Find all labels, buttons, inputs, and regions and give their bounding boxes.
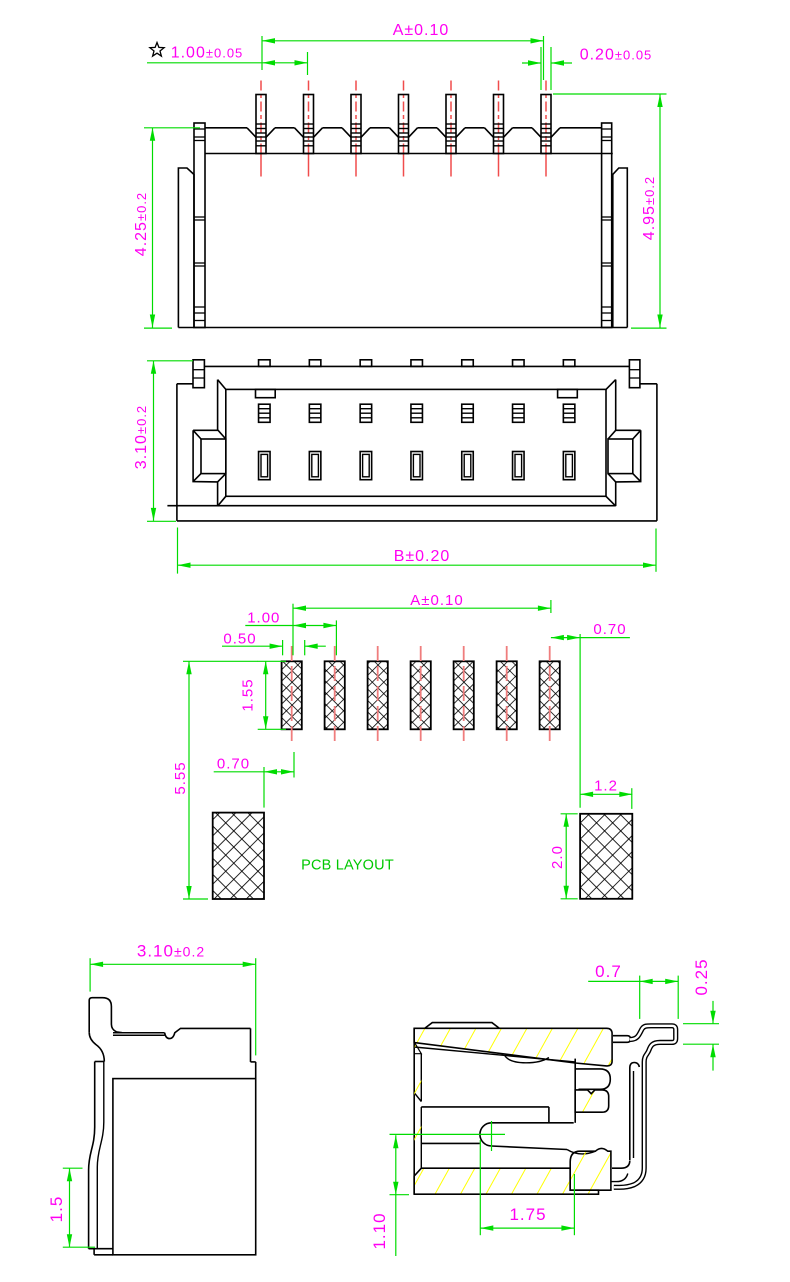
svg-text:4.95±0.2: 4.95±0.2 xyxy=(641,176,658,240)
svg-text:0.25: 0.25 xyxy=(692,958,711,995)
svg-text:0.70: 0.70 xyxy=(217,756,250,773)
svg-text:5.55: 5.55 xyxy=(172,761,189,794)
svg-text:2.0: 2.0 xyxy=(549,845,566,869)
svg-text:B±0.20: B±0.20 xyxy=(394,548,451,565)
svg-text:0.7: 0.7 xyxy=(595,962,622,981)
svg-text:0.50: 0.50 xyxy=(223,631,256,648)
svg-text:0.20±0.05: 0.20±0.05 xyxy=(580,47,653,64)
svg-text:1.55: 1.55 xyxy=(240,678,257,711)
svg-text:1.2: 1.2 xyxy=(594,777,618,794)
svg-text:4.25±0.2: 4.25±0.2 xyxy=(133,192,150,256)
svg-text:3.10±0.2: 3.10±0.2 xyxy=(137,942,205,961)
svg-text:3.10±0.2: 3.10±0.2 xyxy=(133,405,150,469)
svg-text:1.75: 1.75 xyxy=(509,1205,546,1224)
svg-text:A±0.10: A±0.10 xyxy=(410,592,463,609)
svg-text:1.00: 1.00 xyxy=(247,609,280,626)
svg-text:A±0.10: A±0.10 xyxy=(393,22,450,39)
svg-text:PCB LAYOUT: PCB LAYOUT xyxy=(301,858,394,874)
svg-text:1.00±0.05: 1.00±0.05 xyxy=(171,45,244,62)
svg-text:1.5: 1.5 xyxy=(47,1196,66,1223)
svg-text:1.10: 1.10 xyxy=(370,1212,389,1249)
svg-text:0.70: 0.70 xyxy=(593,621,626,638)
